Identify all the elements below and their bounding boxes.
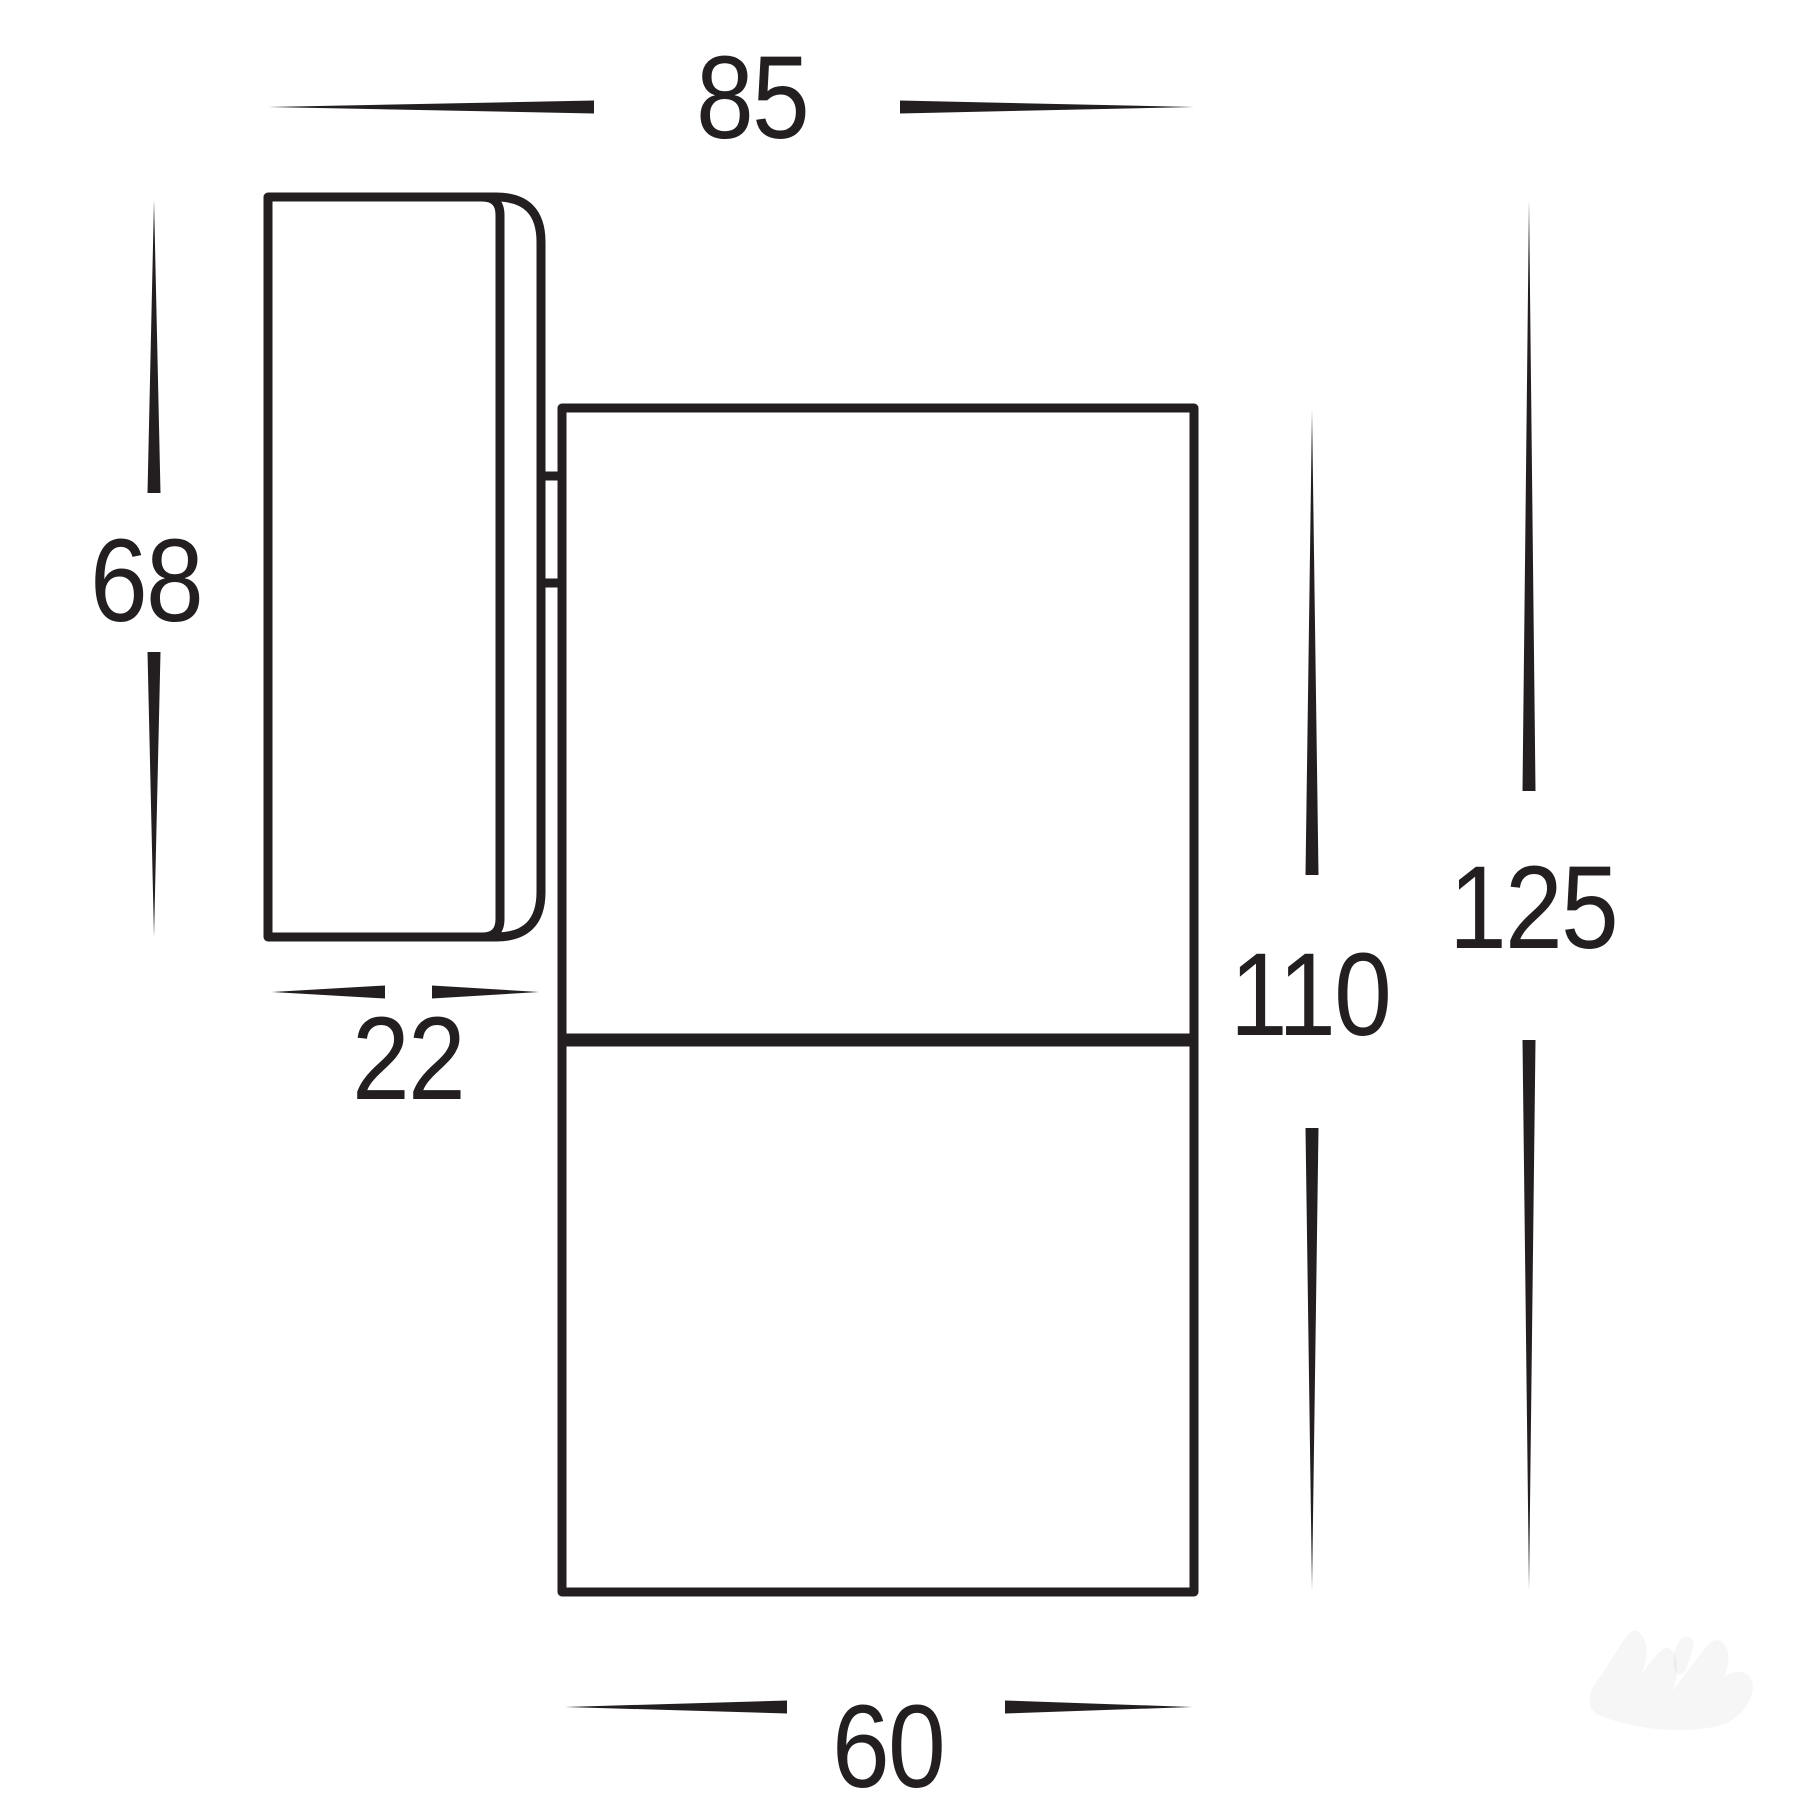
dim-125-top-arrow	[1523, 200, 1536, 791]
dim-label-top-width: 85	[696, 39, 808, 157]
dim-110-bottom-arrow	[1306, 1128, 1319, 1590]
dim-label-body-height: 110	[1230, 936, 1390, 1054]
dim-label-plate-depth: 22	[352, 1000, 464, 1118]
dim-60-left-arrow	[565, 1701, 787, 1714]
dim-68-top-arrow	[148, 200, 161, 493]
dim-label-body-width: 60	[832, 1688, 944, 1800]
dim-60-right-arrow	[1005, 1701, 1192, 1714]
dim-68-bottom-arrow	[148, 652, 161, 937]
dim-label-plate-height: 68	[90, 522, 202, 640]
lamp-body-outline	[562, 408, 1194, 1592]
dim-85-right-arrow	[900, 101, 1194, 114]
dim-110-top-arrow	[1306, 410, 1319, 875]
dimension-drawing-canvas: 85 68 22 110 125 60	[0, 0, 1800, 1800]
watermark	[1589, 1630, 1753, 1730]
dim-label-overall-height: 125	[1449, 849, 1617, 967]
wall-plate-front-edge	[268, 197, 500, 937]
dim-85-left-arrow	[268, 101, 594, 114]
dim-125-bottom-arrow	[1523, 1040, 1536, 1590]
